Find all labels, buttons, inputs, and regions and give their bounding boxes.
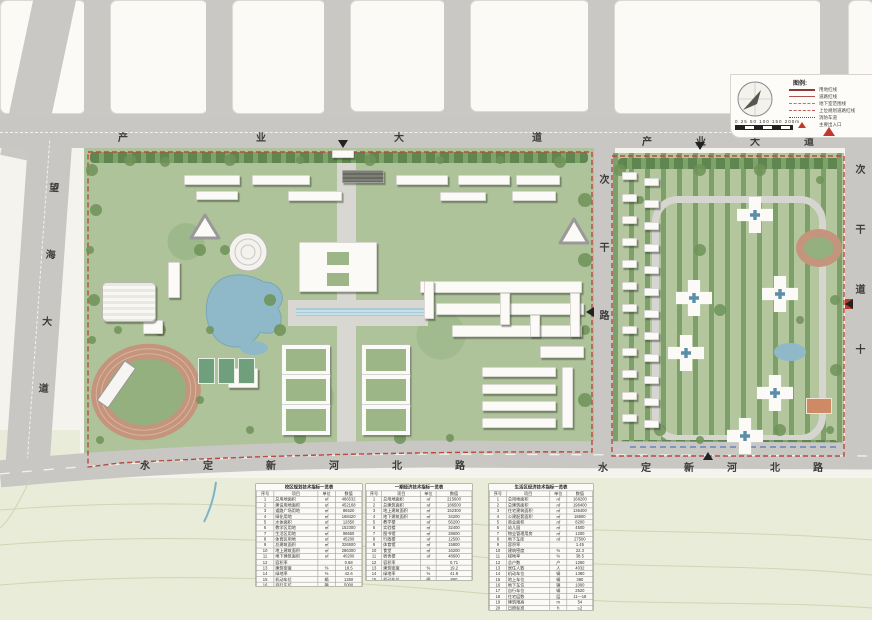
courtyard-building [362, 405, 410, 435]
table-title: 一期经济技术指标一览表 [366, 484, 472, 491]
building [424, 281, 434, 319]
scale-bar-numbers: 0 25 50 100 150 200m [735, 119, 800, 124]
table-row: 16自行车位辆5000 [256, 582, 362, 586]
city-block [470, 0, 590, 112]
building [570, 293, 580, 337]
gymnasium-building [102, 282, 156, 322]
legend-item-label: 道路红线 [819, 93, 837, 99]
road-label-shuiding-east: 水定新河北路 [598, 459, 856, 474]
building [482, 418, 556, 428]
courtyard-building [362, 375, 410, 405]
building [143, 320, 163, 334]
legend-line-swatch [789, 110, 815, 111]
indicator-table-campus: 校区规划技术指标一览表序号项目单位数值1总用地面积㎡4865322建设用地面积㎡… [256, 484, 362, 586]
city-block [232, 0, 326, 114]
building [622, 370, 637, 378]
legend-panel: 图例: 用地红线道路红线地下室范围线上位规划道路红线消防车道主要出入口 0 25… [730, 74, 872, 138]
city-road [444, 0, 470, 120]
courtyard [327, 273, 349, 286]
legend-item-label: 上位规划道路红线 [819, 107, 855, 113]
building [644, 310, 659, 318]
legend-item-label: 消防车道 [819, 114, 837, 120]
legend-item: 用地红线 [789, 86, 859, 93]
building [452, 325, 582, 337]
building [482, 401, 556, 411]
building [644, 244, 659, 252]
building [644, 200, 659, 208]
legend-item: 道路红线 [789, 93, 859, 100]
road-label-middle-secondary: 次干路 [595, 174, 610, 378]
tower-core [750, 210, 760, 220]
building [482, 367, 556, 377]
building [440, 192, 486, 201]
building [644, 266, 659, 274]
table-cell: 860 [436, 576, 472, 580]
entrance-marker-icon [586, 307, 594, 317]
building [332, 150, 354, 158]
courtyard-building [282, 405, 330, 435]
building [622, 216, 637, 224]
building [482, 384, 556, 394]
legend-item-label: 用地红线 [819, 86, 837, 92]
entrance-marker-icon [338, 140, 348, 148]
building [622, 172, 637, 180]
building [252, 175, 310, 185]
building [516, 175, 560, 185]
tower-core [770, 388, 780, 398]
building [184, 175, 240, 185]
legend-entrance-icon [823, 127, 835, 136]
tower-core [775, 289, 785, 299]
building [562, 367, 573, 428]
building [644, 288, 659, 296]
building [458, 175, 510, 185]
building [396, 175, 448, 185]
legend-line-swatch [789, 96, 815, 97]
table-cell: 5000 [335, 582, 361, 586]
building [644, 222, 659, 230]
indicator-table: 校区规划技术指标一览表序号项目单位数值1总用地面积㎡4865322建设用地面积㎡… [256, 484, 362, 586]
table-cell: 辆 [421, 576, 437, 580]
table-row: 20日照标准h≥2 [489, 605, 593, 610]
building [622, 326, 637, 334]
building [540, 346, 584, 358]
building [168, 262, 180, 298]
building [644, 354, 659, 362]
table-title: 校区规划技术指标一览表 [256, 484, 362, 491]
courtyard [327, 252, 349, 265]
building [288, 191, 342, 201]
tennis-court [218, 358, 235, 384]
city-road [324, 0, 350, 120]
building [644, 398, 659, 406]
road-label-industry-avenue-west: 产业大道 [118, 129, 670, 144]
building [342, 170, 384, 183]
legend-line-swatch [789, 89, 815, 91]
table-cell: 15 [366, 576, 382, 580]
building [436, 303, 584, 315]
building [622, 414, 637, 422]
legend-item: 地下室范围线 [789, 100, 859, 107]
building [420, 281, 582, 293]
building [622, 348, 637, 356]
building [500, 293, 510, 325]
entrance-marker-icon [703, 452, 713, 460]
tree-row [618, 158, 840, 169]
building [622, 392, 637, 400]
indicator-table: 生活区经济技术指标一览表序号项目单位数值1总用地面积㎡1682002总建筑面积㎡… [489, 484, 593, 610]
tower-core [681, 348, 691, 358]
legend-item: 上位规划道路红线 [789, 107, 859, 114]
legend-line-swatch [789, 117, 815, 118]
building [644, 420, 659, 428]
table-cell: 自行车位 [274, 582, 318, 586]
north-compass-icon [733, 77, 777, 121]
road-label-shuiding-west: 水定新河北路 [140, 457, 518, 472]
building [530, 315, 540, 337]
building [622, 260, 637, 268]
tower-core [740, 431, 750, 441]
table-row: 15机动车位辆860 [366, 576, 472, 580]
entrance-marker-icon [695, 142, 705, 150]
entrance-marker-icon [845, 299, 853, 309]
building [622, 282, 637, 290]
tennis-court [238, 358, 255, 384]
basketball-court [806, 398, 832, 414]
city-road [206, 0, 232, 120]
table-cell: 16 [256, 582, 274, 586]
courtyard-building [282, 345, 330, 375]
city-road [588, 0, 614, 120]
indicator-table-phase1: 一期经济技术指标一览表序号项目单位数值1总用地面积㎡2156002总建筑面积㎡1… [366, 484, 472, 580]
table-cell: 20 [489, 605, 506, 610]
scale-bar [735, 125, 793, 130]
table-cell: ≥2 [567, 605, 593, 610]
building [622, 304, 637, 312]
courtyard-building [362, 345, 410, 375]
building [622, 238, 637, 246]
table-title: 生活区经济技术指标一览表 [489, 484, 593, 491]
city-block [110, 0, 208, 114]
building [644, 376, 659, 384]
building [644, 332, 659, 340]
residential-loop-road [652, 196, 826, 442]
city-road [84, 0, 110, 120]
indicator-table-residential: 生活区经济技术指标一览表序号项目单位数值1总用地面积㎡1682002总建筑面积㎡… [489, 484, 593, 610]
table-cell: 辆 [318, 582, 336, 586]
road-label-east-secondary: 次干道十 [851, 164, 866, 404]
indicator-table: 一期经济技术指标一览表序号项目单位数值1总用地面积㎡2156002总建筑面积㎡1… [366, 484, 472, 580]
central-plaza [288, 300, 428, 326]
building [622, 194, 637, 202]
building [512, 191, 556, 201]
tennis-court [198, 358, 215, 384]
city-block [350, 0, 446, 112]
master-plan-canvas: 产业大道 产业大道 望海大道 次干路 次干道十 水定新河北路 水定新河北路 图例… [0, 0, 872, 620]
tower-core [689, 293, 699, 303]
legend-item-label: 地下室范围线 [819, 100, 846, 106]
table-cell: 日照标准 [507, 605, 550, 610]
building [644, 178, 659, 186]
courtyard-building [282, 375, 330, 405]
building [196, 191, 238, 200]
table-cell: 机动车位 [382, 576, 421, 580]
legend-line-swatch [789, 103, 815, 104]
table-cell: h [550, 605, 567, 610]
